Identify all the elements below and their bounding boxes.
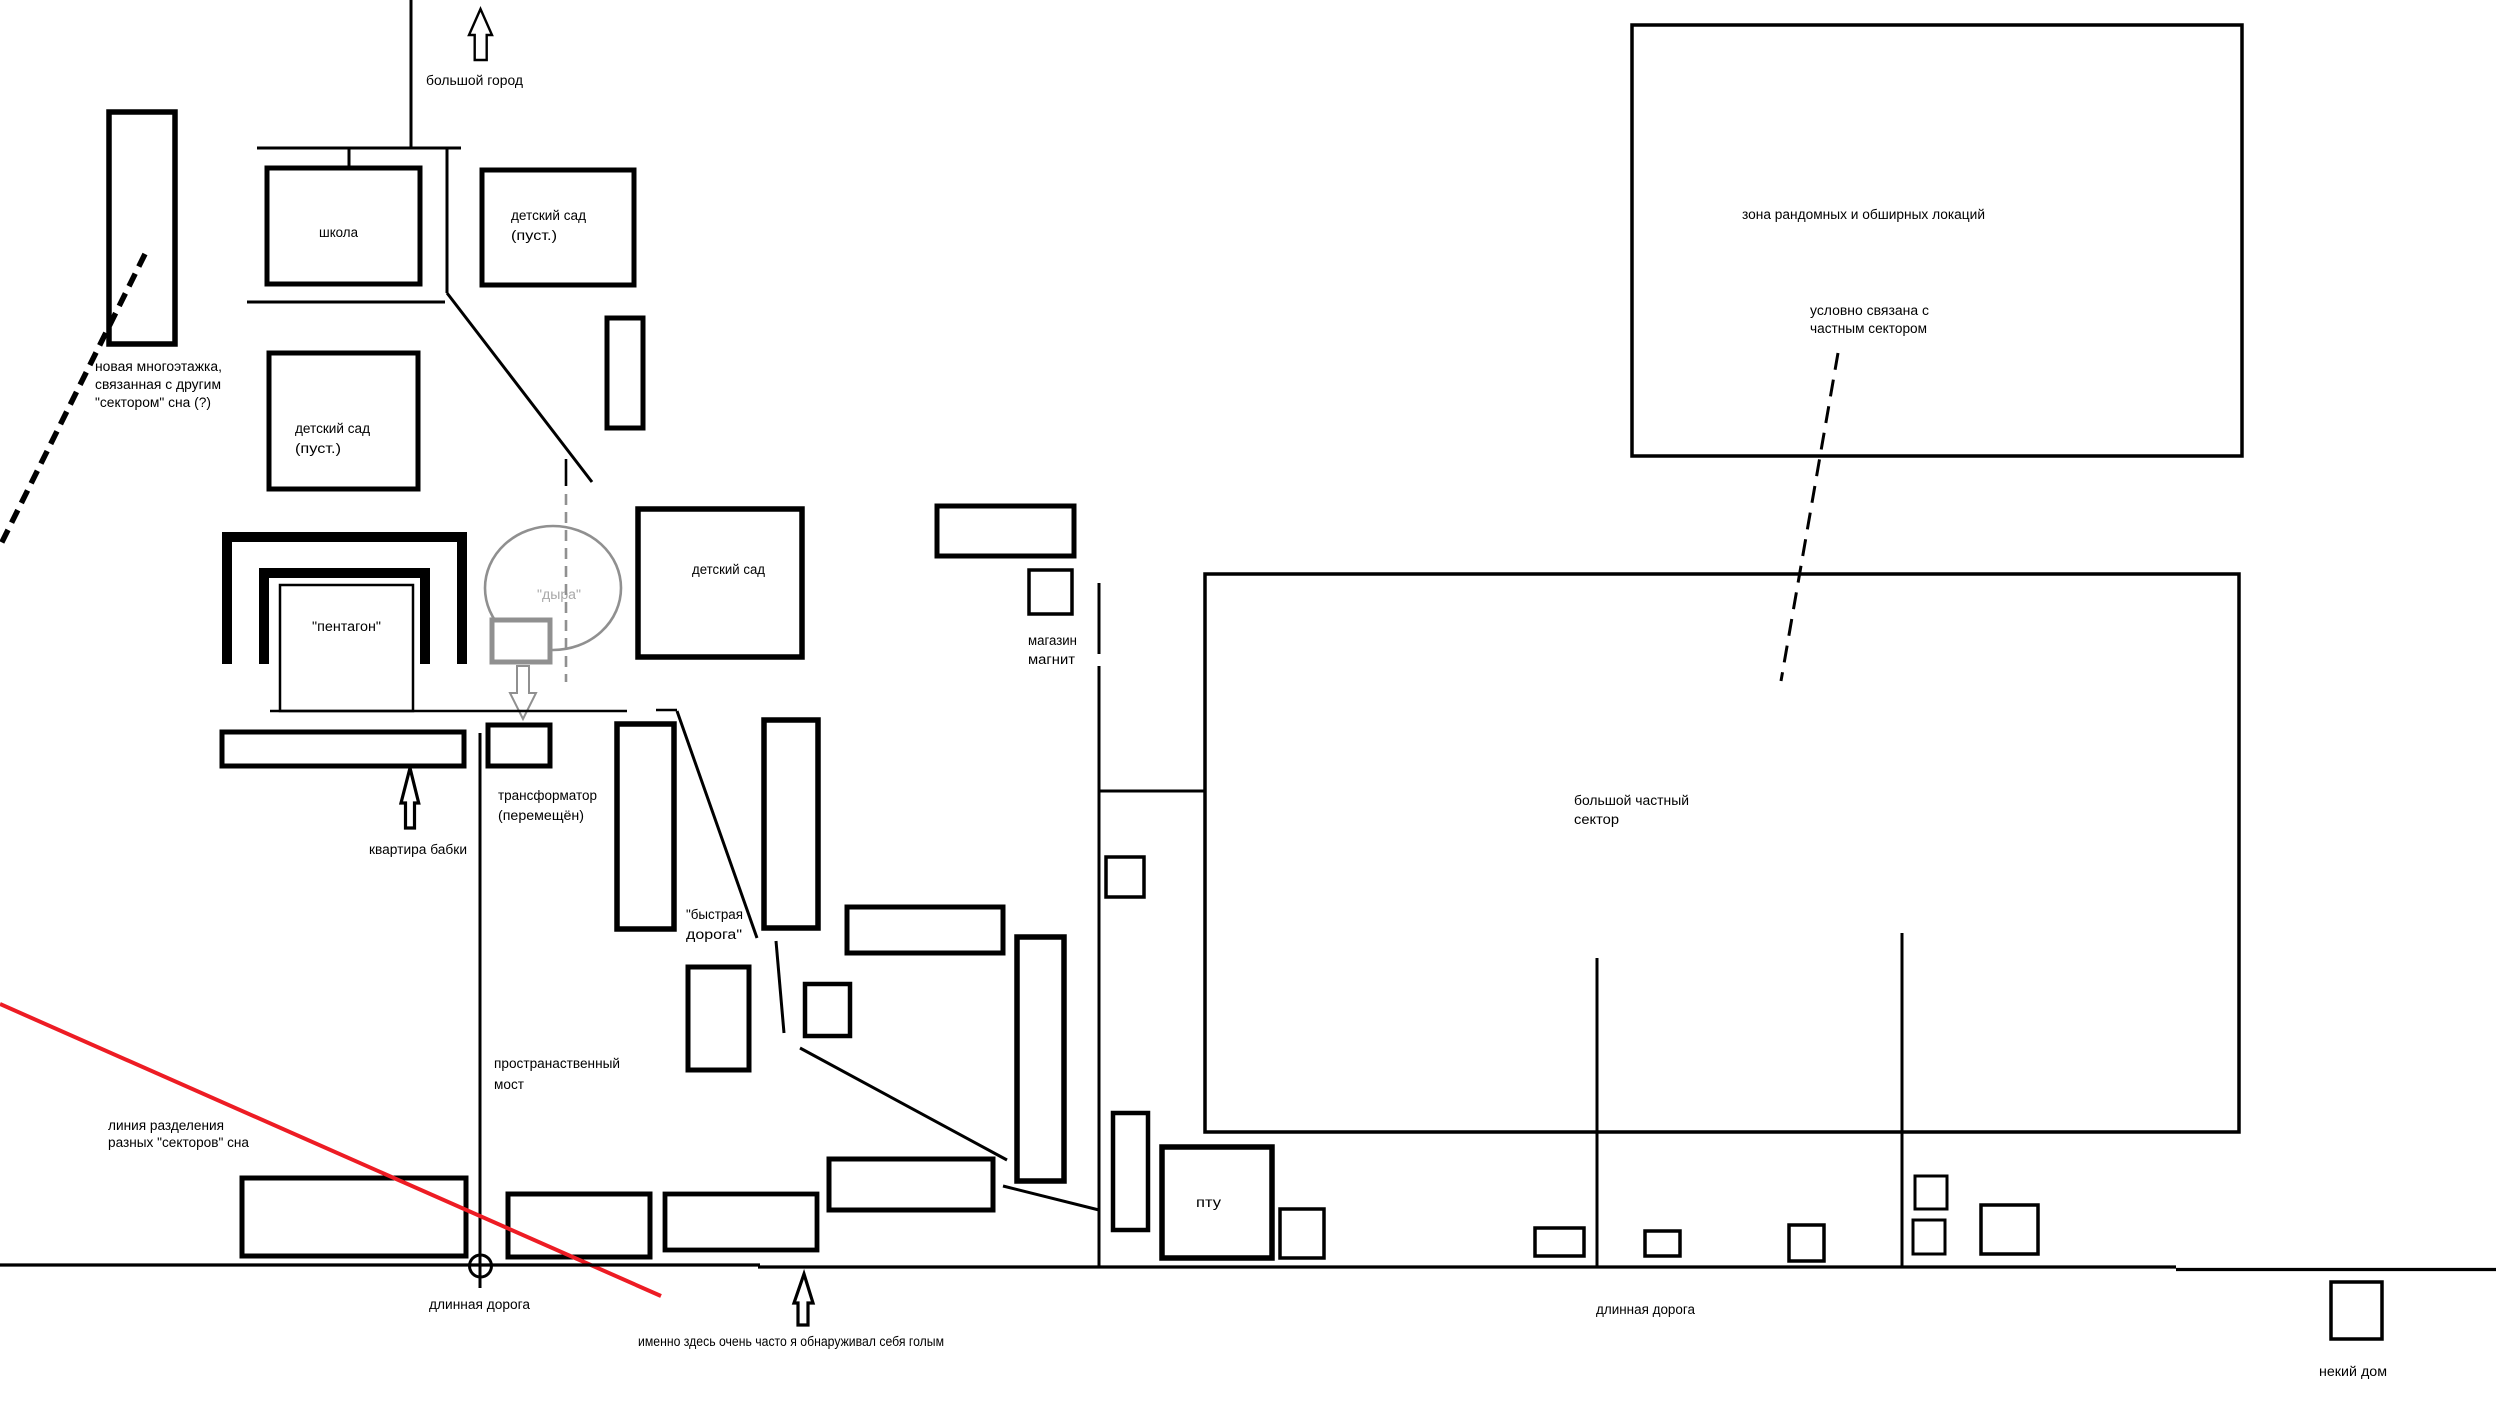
svg-text:частным сектором: частным сектором (1810, 321, 1927, 336)
svg-text:"пентагон": "пентагон" (312, 619, 381, 634)
svg-text:сектор: сектор (1574, 812, 1619, 827)
svg-text:зона рандомных и обширных лока: зона рандомных и обширных локаций (1742, 207, 1985, 222)
svg-text:именно здесь очень часто я обн: именно здесь очень часто я обнаруживал с… (638, 1334, 944, 1349)
svg-text:большой город: большой город (426, 73, 523, 88)
svg-text:"сектором" сна (?): "сектором" сна (?) (95, 395, 211, 410)
svg-text:детский сад: детский сад (692, 562, 765, 577)
svg-text:(пуст.): (пуст.) (511, 228, 557, 243)
svg-text:магнит: магнит (1028, 652, 1075, 667)
svg-text:"дыра": "дыра" (537, 587, 581, 602)
svg-text:магазин: магазин (1028, 633, 1077, 648)
svg-text:некий дом: некий дом (2319, 1364, 2387, 1379)
svg-text:квартира бабки: квартира бабки (369, 842, 467, 857)
svg-text:"быстрая: "быстрая (686, 907, 743, 922)
svg-text:детский сад: детский сад (295, 421, 370, 436)
svg-text:(пуст.): (пуст.) (295, 441, 341, 456)
svg-text:пту: пту (1196, 1195, 1221, 1210)
svg-text:школа: школа (319, 225, 358, 240)
svg-text:длинная дорога: длинная дорога (1596, 1302, 1695, 1317)
svg-text:(перемещён): (перемещён) (498, 808, 584, 823)
svg-text:мост: мост (494, 1077, 524, 1092)
svg-text:условно связана с: условно связана с (1810, 303, 1929, 318)
svg-text:трансформатор: трансформатор (498, 788, 597, 803)
svg-text:разных "секторов" сна: разных "секторов" сна (108, 1135, 249, 1150)
svg-text:большой частный: большой частный (1574, 793, 1689, 808)
svg-text:дорога": дорога" (686, 927, 742, 942)
svg-text:пространаственный: пространаственный (494, 1056, 620, 1071)
svg-text:связанная с другим: связанная с другим (95, 377, 221, 392)
svg-text:линия разделения: линия разделения (108, 1118, 224, 1133)
svg-text:длинная дорога: длинная дорога (429, 1297, 530, 1312)
svg-text:детский сад: детский сад (511, 208, 586, 223)
svg-text:новая многоэтажка,: новая многоэтажка, (95, 359, 222, 374)
